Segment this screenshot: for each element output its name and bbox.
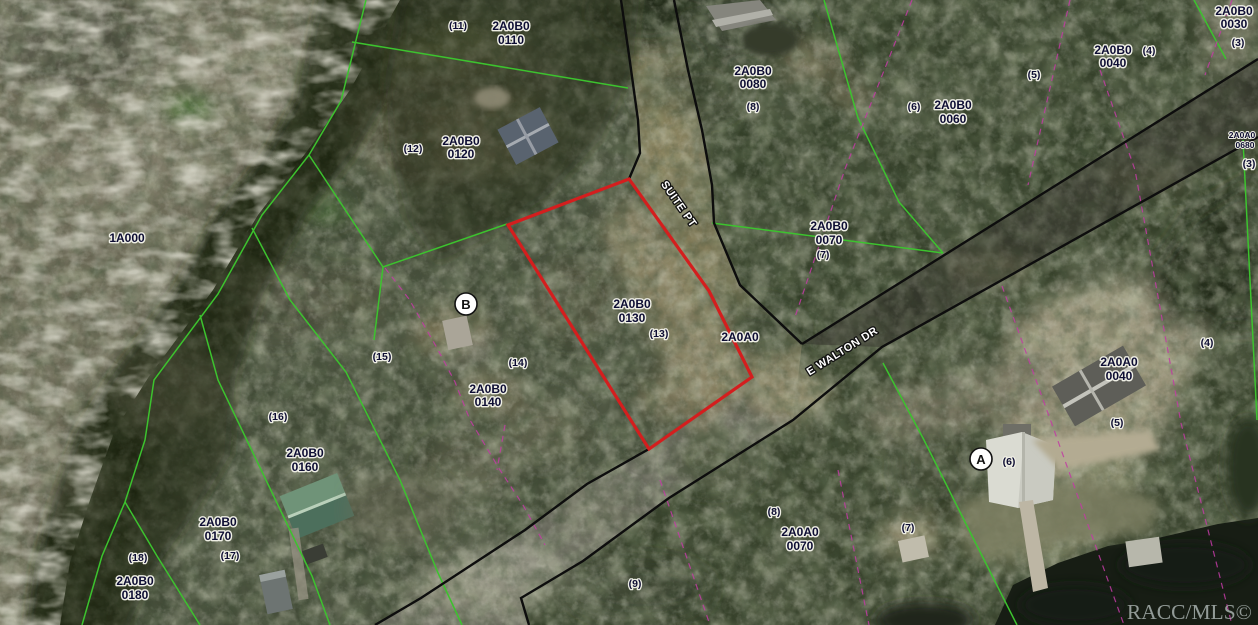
svg-text:(4): (4) (1201, 337, 1214, 349)
svg-text:(5): (5) (1111, 417, 1124, 429)
svg-text:(12): (12) (404, 143, 423, 155)
svg-text:2A0A0: 2A0A0 (1100, 355, 1138, 369)
svg-text:0060: 0060 (940, 112, 967, 126)
svg-text:0120: 0120 (448, 147, 475, 161)
svg-text:0130: 0130 (619, 311, 646, 325)
svg-text:(13): (13) (650, 328, 669, 340)
svg-text:2A0B0: 2A0B0 (1215, 4, 1253, 18)
svg-text:(16): (16) (269, 411, 288, 423)
svg-text:2A0B0: 2A0B0 (810, 219, 848, 233)
svg-text:0030: 0030 (1221, 17, 1248, 31)
svg-text:2A0B0: 2A0B0 (469, 382, 507, 396)
svg-text:0140: 0140 (475, 395, 502, 409)
svg-text:2A0B0: 2A0B0 (116, 574, 154, 588)
svg-text:(3): (3) (1232, 37, 1245, 49)
svg-text:2A0B0: 2A0B0 (199, 515, 237, 529)
svg-text:(9): (9) (629, 578, 642, 590)
svg-text:2A0B0: 2A0B0 (1094, 43, 1132, 57)
svg-text:0180: 0180 (122, 588, 149, 602)
svg-text:2A0A0: 2A0A0 (1229, 130, 1256, 140)
svg-text:(5): (5) (1028, 69, 1041, 81)
svg-text:(8): (8) (747, 101, 760, 113)
svg-text:1A000: 1A000 (109, 231, 145, 245)
svg-text:2A0B0: 2A0B0 (734, 64, 772, 78)
svg-text:0070: 0070 (787, 539, 814, 553)
svg-text:(4): (4) (1143, 45, 1156, 57)
svg-text:(17): (17) (221, 550, 240, 562)
svg-text:(6): (6) (908, 101, 921, 113)
svg-text:0170: 0170 (205, 529, 232, 543)
svg-text:2A0B0: 2A0B0 (613, 297, 651, 311)
svg-text:2A0B0: 2A0B0 (934, 98, 972, 112)
svg-text:0110: 0110 (498, 33, 524, 47)
svg-text:0680: 0680 (1236, 140, 1255, 150)
svg-text:(3): (3) (1243, 158, 1256, 170)
svg-text:B: B (461, 297, 470, 312)
svg-text:2A0A0: 2A0A0 (721, 330, 759, 344)
svg-text:2A0B0: 2A0B0 (492, 19, 530, 33)
svg-text:0160: 0160 (292, 460, 319, 474)
svg-text:(6): (6) (1003, 456, 1016, 468)
svg-text:A: A (976, 452, 986, 467)
svg-text:(11): (11) (449, 20, 467, 32)
svg-text:0040: 0040 (1100, 56, 1127, 70)
svg-text:(7): (7) (817, 249, 830, 261)
svg-text:(18): (18) (129, 552, 148, 564)
svg-text:0070: 0070 (816, 233, 843, 247)
svg-text:0080: 0080 (740, 77, 767, 91)
svg-text:(14): (14) (509, 357, 528, 369)
svg-text:2A0A0: 2A0A0 (781, 525, 819, 539)
svg-text:2A0B0: 2A0B0 (286, 446, 324, 460)
svg-text:(15): (15) (373, 351, 392, 363)
svg-text:(8): (8) (768, 506, 781, 518)
svg-text:(7): (7) (902, 522, 915, 534)
svg-text:0040: 0040 (1106, 369, 1133, 383)
svg-text:2A0B0: 2A0B0 (442, 134, 480, 148)
svg-text:RACC/MLS©: RACC/MLS© (1127, 600, 1252, 624)
